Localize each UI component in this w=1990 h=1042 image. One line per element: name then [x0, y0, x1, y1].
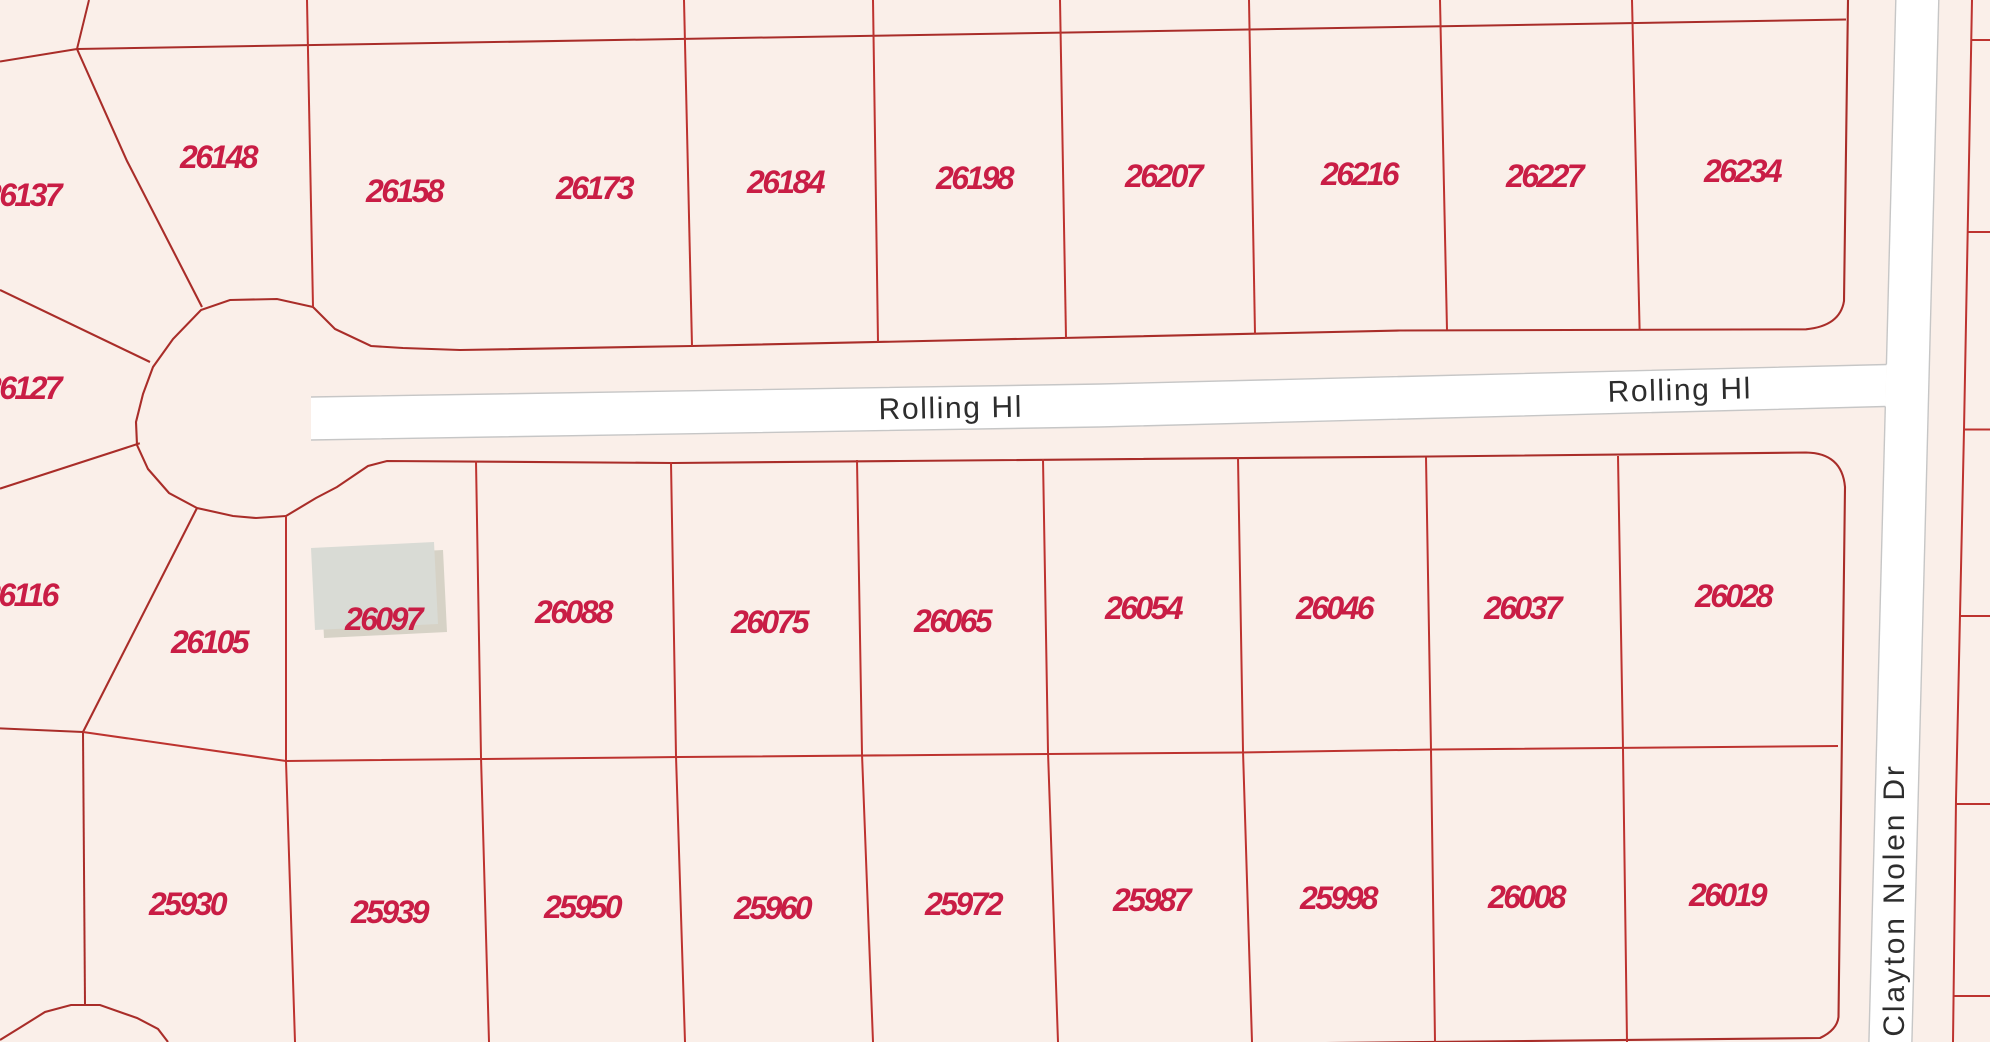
svg-text:26207: 26207 [1124, 158, 1206, 194]
svg-text:25972: 25972 [924, 886, 1004, 922]
svg-text:26028: 26028 [1694, 578, 1774, 614]
svg-text:26037: 26037 [1483, 590, 1565, 626]
svg-text:Clayton Nolen Dr: Clayton Nolen Dr [1878, 763, 1911, 1036]
svg-text:26019: 26019 [1688, 877, 1768, 913]
svg-text:26075: 26075 [730, 604, 811, 640]
svg-text:Rolling Hl: Rolling Hl [1607, 372, 1752, 409]
svg-text:26227: 26227 [1505, 158, 1587, 194]
svg-text:26116: 26116 [0, 577, 60, 613]
svg-text:25960: 25960 [733, 890, 813, 926]
svg-text:26088: 26088 [534, 594, 614, 630]
svg-text:26105: 26105 [170, 624, 251, 660]
svg-text:26216: 26216 [1320, 156, 1400, 192]
svg-text:26127: 26127 [0, 370, 65, 406]
svg-text:25950: 25950 [543, 889, 623, 925]
svg-text:26173: 26173 [555, 170, 635, 206]
svg-text:26065: 26065 [913, 603, 994, 639]
svg-text:25998: 25998 [1299, 880, 1379, 916]
svg-text:Rolling Hl: Rolling Hl [878, 391, 1023, 427]
svg-text:26137: 26137 [0, 177, 65, 213]
svg-text:25987: 25987 [1112, 882, 1194, 918]
svg-text:25939: 25939 [350, 894, 430, 930]
svg-text:26198: 26198 [935, 160, 1015, 196]
svg-text:26097: 26097 [344, 601, 426, 637]
svg-text:26148: 26148 [179, 139, 259, 175]
svg-text:26184: 26184 [746, 164, 826, 200]
svg-text:26234: 26234 [1703, 153, 1783, 189]
svg-text:26008: 26008 [1487, 879, 1567, 915]
svg-text:26158: 26158 [365, 173, 445, 209]
svg-text:25930: 25930 [148, 886, 228, 922]
svg-text:26054: 26054 [1104, 590, 1184, 626]
svg-text:26046: 26046 [1295, 590, 1375, 626]
